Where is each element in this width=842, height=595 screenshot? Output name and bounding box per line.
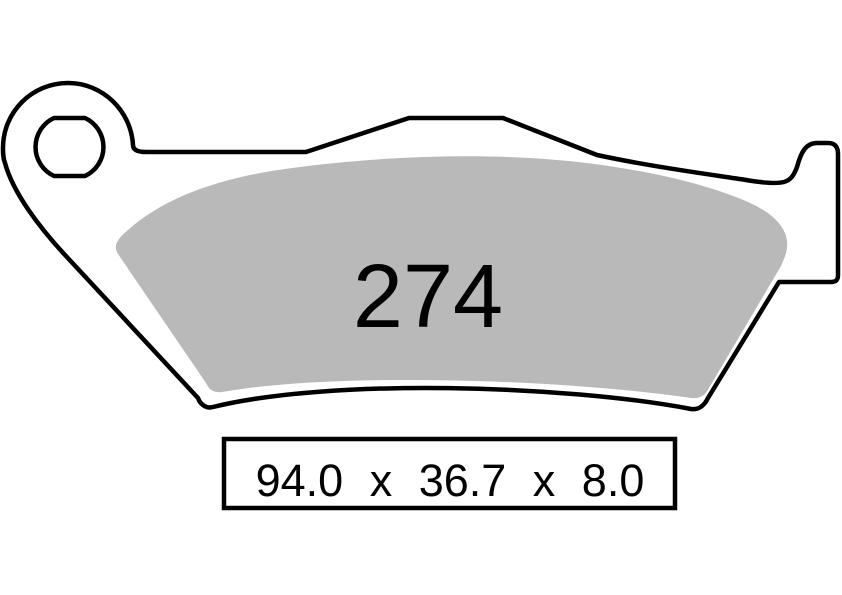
part-number-label: 274 — [353, 247, 503, 347]
dimensions-label: 94.0 x 36.7 x 8.0 — [256, 455, 645, 506]
dimensions-box: 94.0 x 36.7 x 8.0 — [224, 439, 675, 508]
pad-mounting-hole — [36, 118, 104, 176]
brake-pad-diagram-canvas: 274 94.0 x 36.7 x 8.0 — [0, 0, 842, 595]
brake-pad-technical-drawing: 274 94.0 x 36.7 x 8.0 — [0, 0, 842, 595]
